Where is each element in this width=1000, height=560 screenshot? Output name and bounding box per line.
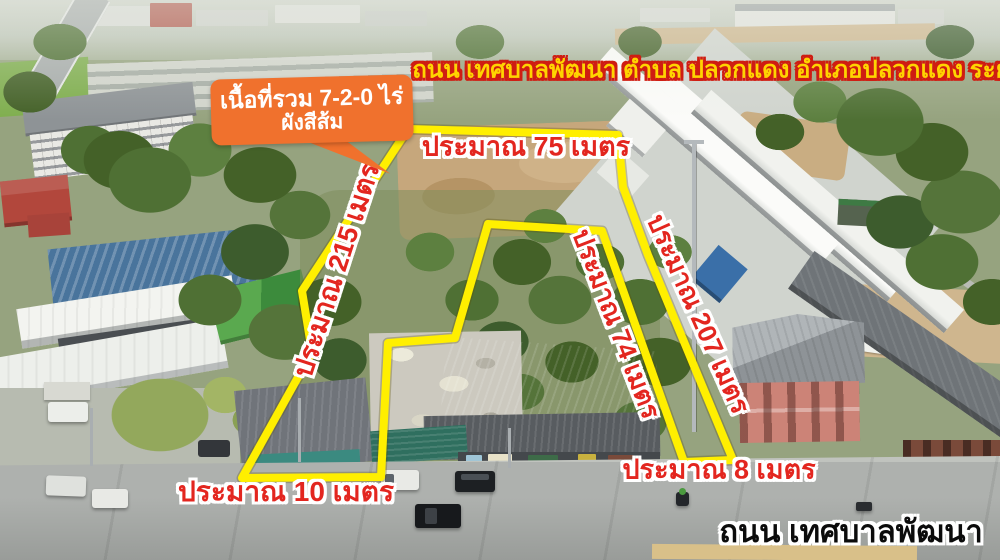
white-suv (92, 489, 128, 508)
white-pickup-yard (48, 402, 88, 422)
utility-pole (90, 408, 93, 466)
utility-pole (508, 428, 511, 468)
measurement-frontage-8m: ประมาณ 8 เมตร (622, 448, 815, 491)
white-car (46, 475, 87, 496)
red-roof-building-small (27, 213, 70, 238)
house-under-construction (732, 313, 866, 447)
road-name-label: ถนน เทศบาลพัฒนา (719, 506, 983, 556)
dark-car-yard (198, 440, 230, 457)
far-building (196, 10, 268, 26)
yard-awning (44, 382, 90, 400)
area-callout-line2: ผังสีส้ม (281, 110, 344, 136)
black-van (455, 471, 495, 492)
area-callout: เนื้อที่รวม 7-2-0 ไร่ ผังสีส้ม (210, 74, 414, 145)
motorbike-rider (676, 492, 689, 506)
far-building (365, 11, 427, 26)
house-brick-wall (739, 381, 860, 443)
house-roof (732, 313, 865, 385)
left-yard (0, 388, 240, 470)
far-building-red-roof (150, 3, 192, 27)
measurement-frontage-10m: ประมาณ 10 เมตร (178, 470, 394, 514)
green-mesh-fence (370, 425, 468, 465)
far-building (640, 8, 710, 22)
utility-pole (298, 398, 301, 462)
black-pickup-truck (415, 504, 461, 528)
measurement-top-75m: ประมาณ 75 เมตร (422, 125, 630, 168)
far-building (898, 9, 944, 24)
farm-shack (837, 199, 886, 227)
top-banner-text: ถนน เทศบาลพัฒนา ตำบล ปลวกแดง อำเภอปลวกแด… (412, 50, 1000, 89)
aerial-photo: ถนน เทศบาลพัฒนา ตำบล ปลวกแดง อำเภอปลวกแด… (0, 0, 1000, 560)
far-building (275, 5, 360, 23)
area-callout-line1: เนื้อที่รวม 7-2-0 ไร่ (220, 82, 404, 113)
